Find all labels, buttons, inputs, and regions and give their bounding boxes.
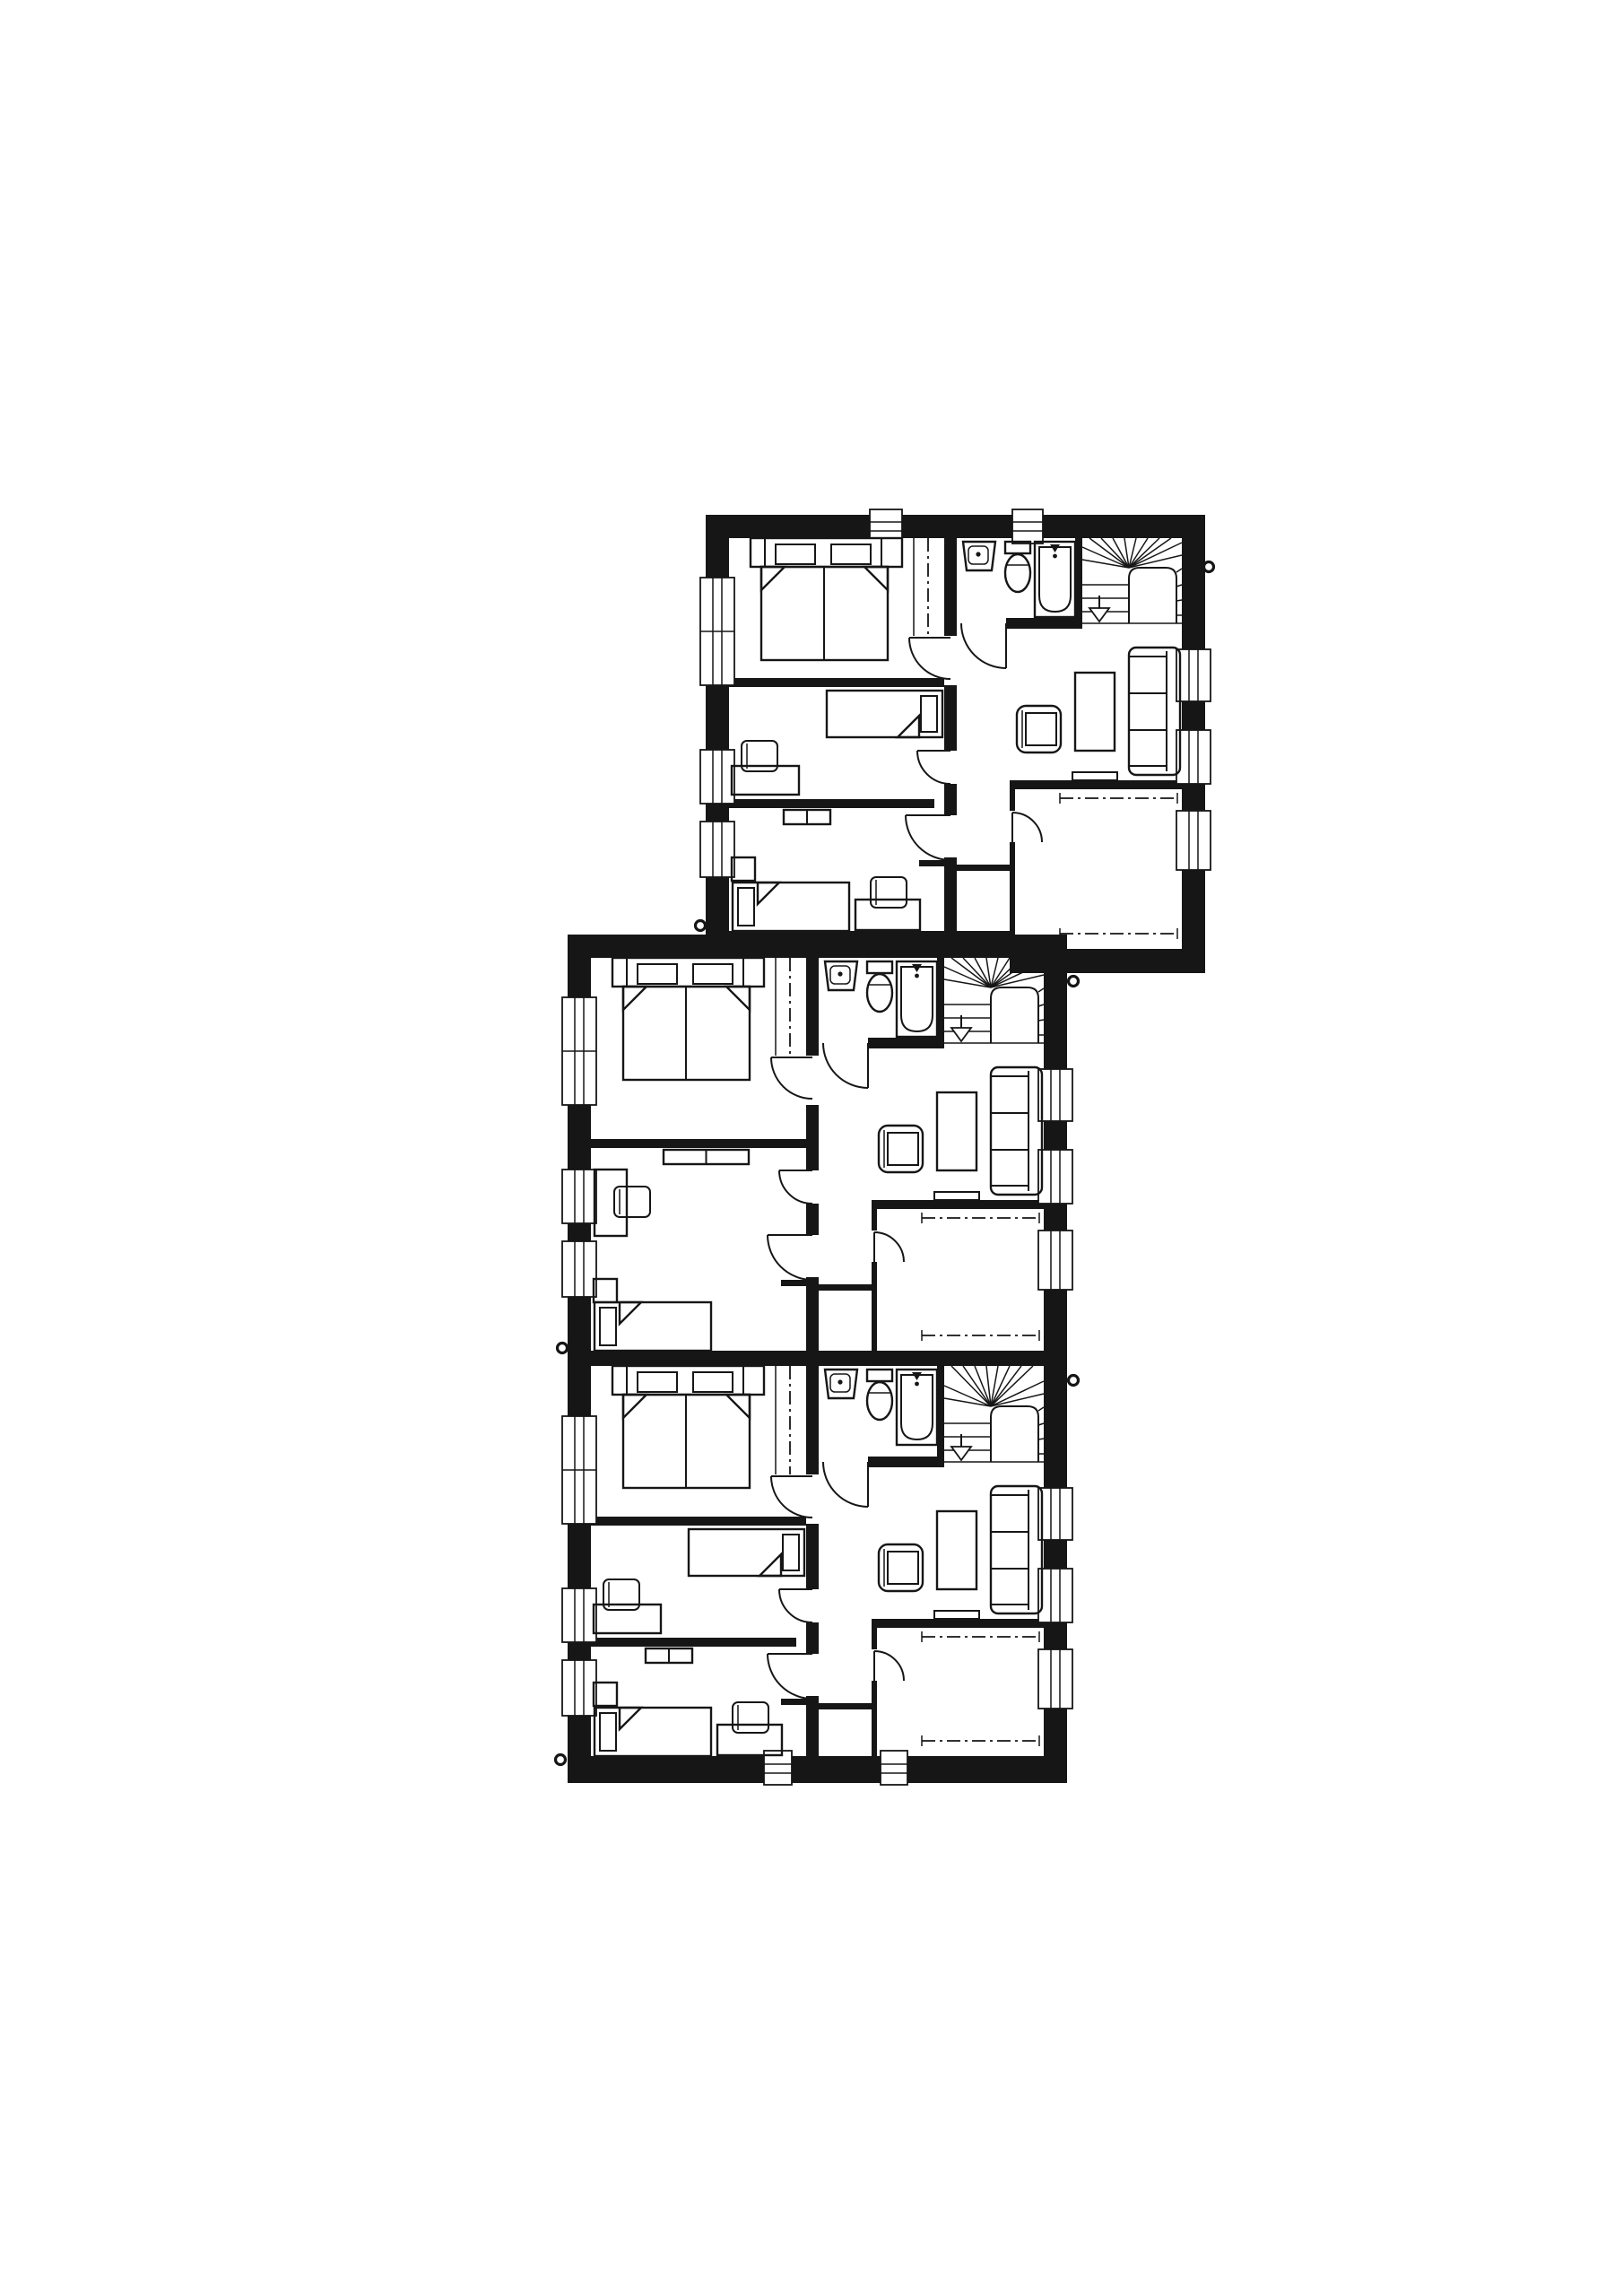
- window: [881, 1751, 907, 1785]
- window: [700, 822, 734, 877]
- window: [562, 1170, 596, 1223]
- window: [562, 1416, 596, 1524]
- window: [562, 1241, 596, 1297]
- window: [1012, 509, 1043, 544]
- window: [700, 578, 734, 685]
- window: [1038, 1069, 1072, 1121]
- window: [1176, 730, 1211, 784]
- vent-circle: [558, 1344, 568, 1353]
- window: [1038, 1150, 1072, 1204]
- window: [1176, 649, 1211, 701]
- window: [562, 1660, 596, 1716]
- vent-circle: [556, 1755, 566, 1765]
- window: [1176, 811, 1211, 870]
- window: [1038, 1649, 1072, 1709]
- vent-circle: [1069, 1376, 1079, 1386]
- vent-circle: [1069, 977, 1079, 987]
- window: [700, 750, 734, 804]
- floor-plan-page: [0, 0, 1623, 2296]
- window: [1038, 1569, 1072, 1622]
- window: [1038, 1488, 1072, 1540]
- floor-plan-drawing: [0, 0, 1623, 2296]
- window: [562, 997, 596, 1105]
- vent-circle: [696, 921, 706, 931]
- vent-circle: [1204, 562, 1214, 572]
- window: [1038, 1231, 1072, 1290]
- window: [562, 1588, 596, 1642]
